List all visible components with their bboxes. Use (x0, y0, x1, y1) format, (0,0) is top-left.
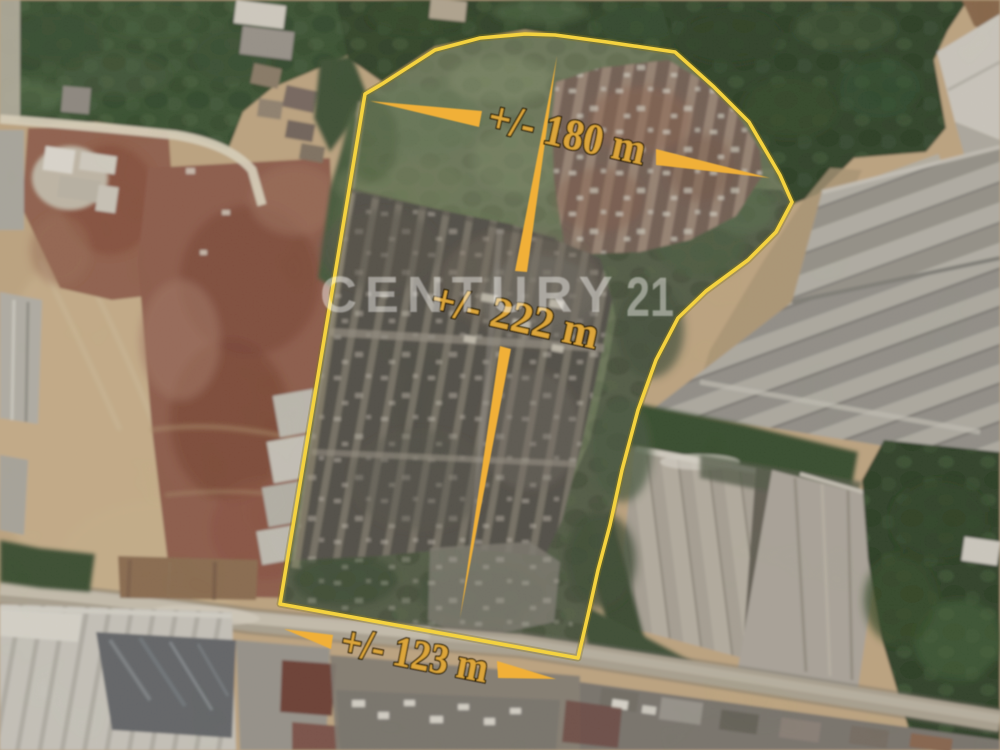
svg-text:CENTURY: CENTURY (320, 266, 621, 323)
svg-text:21: 21 (626, 265, 674, 328)
